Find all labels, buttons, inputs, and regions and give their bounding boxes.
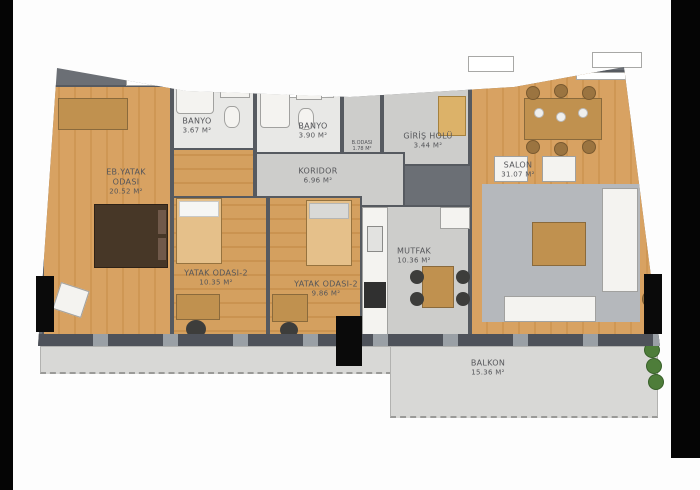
window [576, 72, 626, 80]
vanity-sink [296, 84, 322, 100]
floor-plan-page: EB.YATAK ODASI 20.52 M² BANYO 3.67 M² BA… [0, 0, 700, 490]
armchair [542, 156, 576, 182]
dining-chair [554, 84, 568, 98]
dining-chair [526, 140, 540, 154]
entry-cabinet [438, 96, 466, 136]
toilet [224, 106, 240, 128]
coffee-table [532, 222, 586, 266]
label-closet: B.ODASI 1.78 M² [352, 140, 373, 152]
label-bedroom-2: YATAK ODASI-2 10.35 M² [184, 269, 248, 288]
sink [367, 226, 383, 252]
wall-accent [36, 276, 54, 332]
label-master-bedroom: EB.YATAK ODASI 20.52 M² [106, 168, 146, 197]
vanity-sink [220, 80, 250, 98]
exterior-ledge [592, 52, 642, 68]
dining-chair [582, 140, 596, 154]
label-corridor: KORIDOR 6.96 M² [298, 167, 337, 186]
dining-chair [526, 86, 540, 100]
wall-accent [644, 274, 662, 334]
bathtub [260, 84, 290, 128]
building-outline [36, 64, 662, 350]
stove [364, 282, 386, 308]
label-kitchen: MUTFAK 10.36 M² [397, 247, 431, 266]
dining-chair [554, 142, 568, 156]
balcony-area [390, 346, 658, 418]
room-master-dressing [172, 148, 255, 198]
sofa [504, 296, 596, 322]
wall-accent [336, 316, 362, 366]
master-bed [94, 204, 168, 268]
pillow [158, 238, 166, 260]
kitchen-cabinet [440, 207, 470, 229]
plate [534, 108, 544, 118]
label-living-room: SALON 31.07 M² [501, 161, 535, 180]
chair [456, 270, 470, 284]
pillow [158, 210, 166, 234]
dining-chair [582, 86, 596, 100]
right-edge-bar [671, 0, 700, 458]
chair [410, 270, 424, 284]
plate [578, 108, 588, 118]
chair [410, 292, 424, 306]
label-balcony: BALKON 15.36 M² [471, 359, 505, 378]
pillow [309, 203, 349, 219]
window [456, 80, 500, 88]
label-bathroom-1: BANYO 3.67 M² [182, 117, 211, 136]
left-edge-bar [0, 0, 13, 490]
plate [556, 112, 566, 122]
label-bathroom-2: BANYO 3.90 M² [298, 122, 327, 141]
label-entrance-hall: GİRİŞ HOLÜ 3.44 M² [403, 132, 452, 151]
bathtub [176, 82, 214, 114]
desk [176, 294, 220, 320]
plant-icon [648, 374, 664, 390]
exterior-ledge [468, 56, 514, 72]
kitchen-table [422, 266, 454, 308]
window [126, 78, 172, 86]
plant-icon [646, 358, 662, 374]
wardrobe [58, 98, 128, 130]
pillow [179, 201, 219, 217]
pouf [644, 172, 662, 190]
sofa [602, 188, 638, 292]
chair [456, 292, 470, 306]
label-bedroom-3: YATAK ODASI-2 9.86 M² [294, 280, 358, 299]
